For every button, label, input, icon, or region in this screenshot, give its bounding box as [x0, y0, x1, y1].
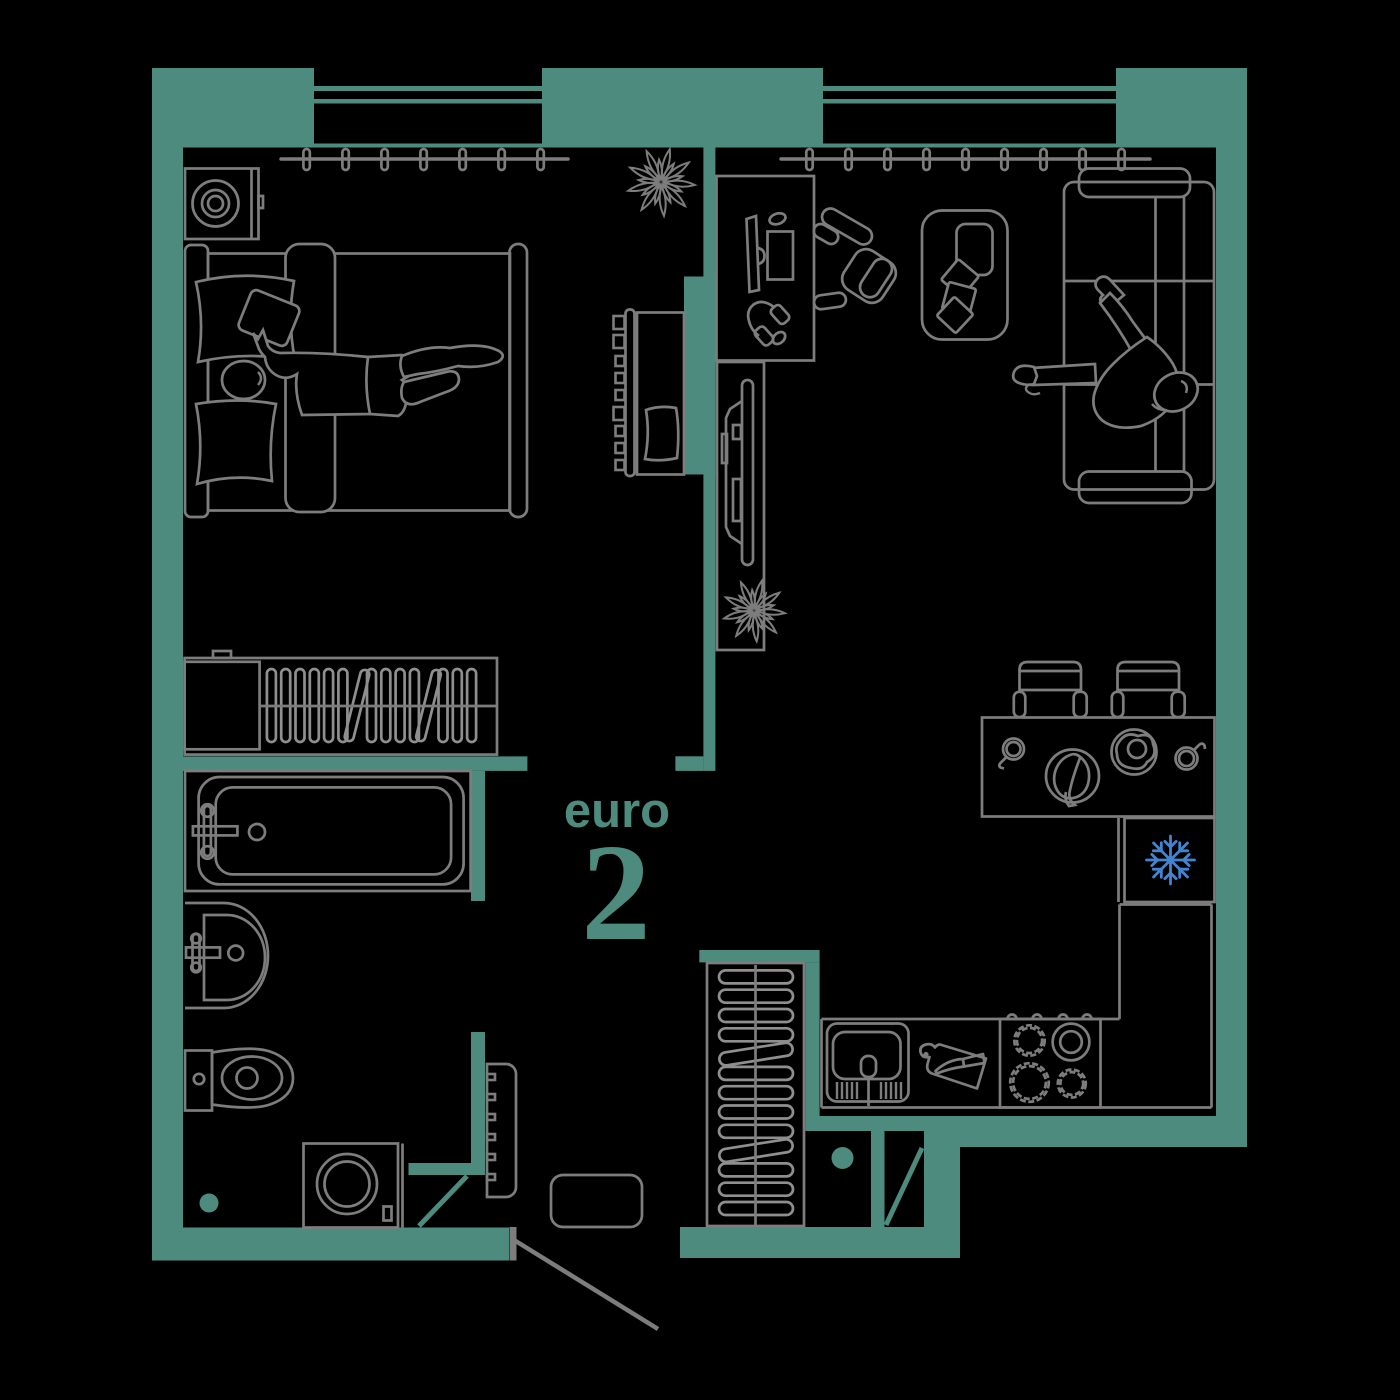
svg-text:2: 2 — [581, 816, 651, 970]
